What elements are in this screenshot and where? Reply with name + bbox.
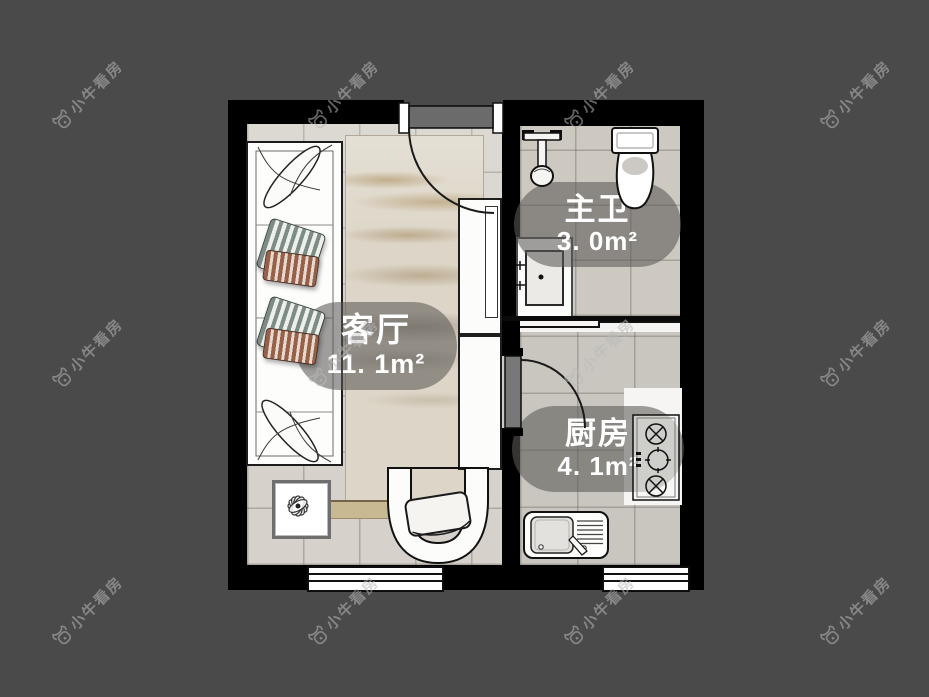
- plant-sketch: [287, 495, 309, 517]
- watermark: 小牛看房: [816, 571, 895, 650]
- floor-plan: 客厅 11. 1m² 主卫 3. 0m² 厨房 4. 1m²: [228, 100, 704, 590]
- bull-icon: [49, 364, 77, 392]
- watermark-text: 小牛看房: [65, 571, 128, 634]
- bull-icon: [49, 622, 77, 650]
- watermark: 小牛看房: [48, 55, 127, 134]
- bath-faucet: [516, 261, 544, 290]
- watermark: 小牛看房: [816, 55, 895, 134]
- watermark: 小牛看房: [48, 571, 127, 650]
- page-background: 客厅 11. 1m² 主卫 3. 0m² 厨房 4. 1m²: [0, 0, 929, 697]
- stove-knobs: [636, 452, 641, 467]
- watermark: 小牛看房: [48, 313, 127, 392]
- watermark-text: 小牛看房: [833, 313, 896, 376]
- toilet: [612, 128, 658, 208]
- kitchen-door-leaf: [505, 356, 521, 428]
- watermark-text: 小牛看房: [65, 313, 128, 376]
- watermark-text: 小牛看房: [833, 571, 896, 634]
- bull-icon: [49, 106, 77, 134]
- bull-icon: [817, 364, 845, 392]
- stove: [633, 415, 679, 500]
- kitchen-door-swing-arc: [521, 360, 585, 428]
- watermark: 小牛看房: [816, 313, 895, 392]
- bull-icon: [305, 622, 333, 650]
- kitchen-door: [503, 348, 585, 436]
- watermark-text: 小牛看房: [833, 55, 896, 118]
- plan-lineart-upper: [228, 100, 704, 590]
- bull-icon: [817, 622, 845, 650]
- bull-icon: [817, 106, 845, 134]
- shower-fixture: [522, 130, 562, 186]
- armchair: [388, 468, 488, 563]
- bull-icon: [561, 622, 589, 650]
- kitchen-sink: [524, 512, 608, 558]
- watermark-text: 小牛看房: [65, 55, 128, 118]
